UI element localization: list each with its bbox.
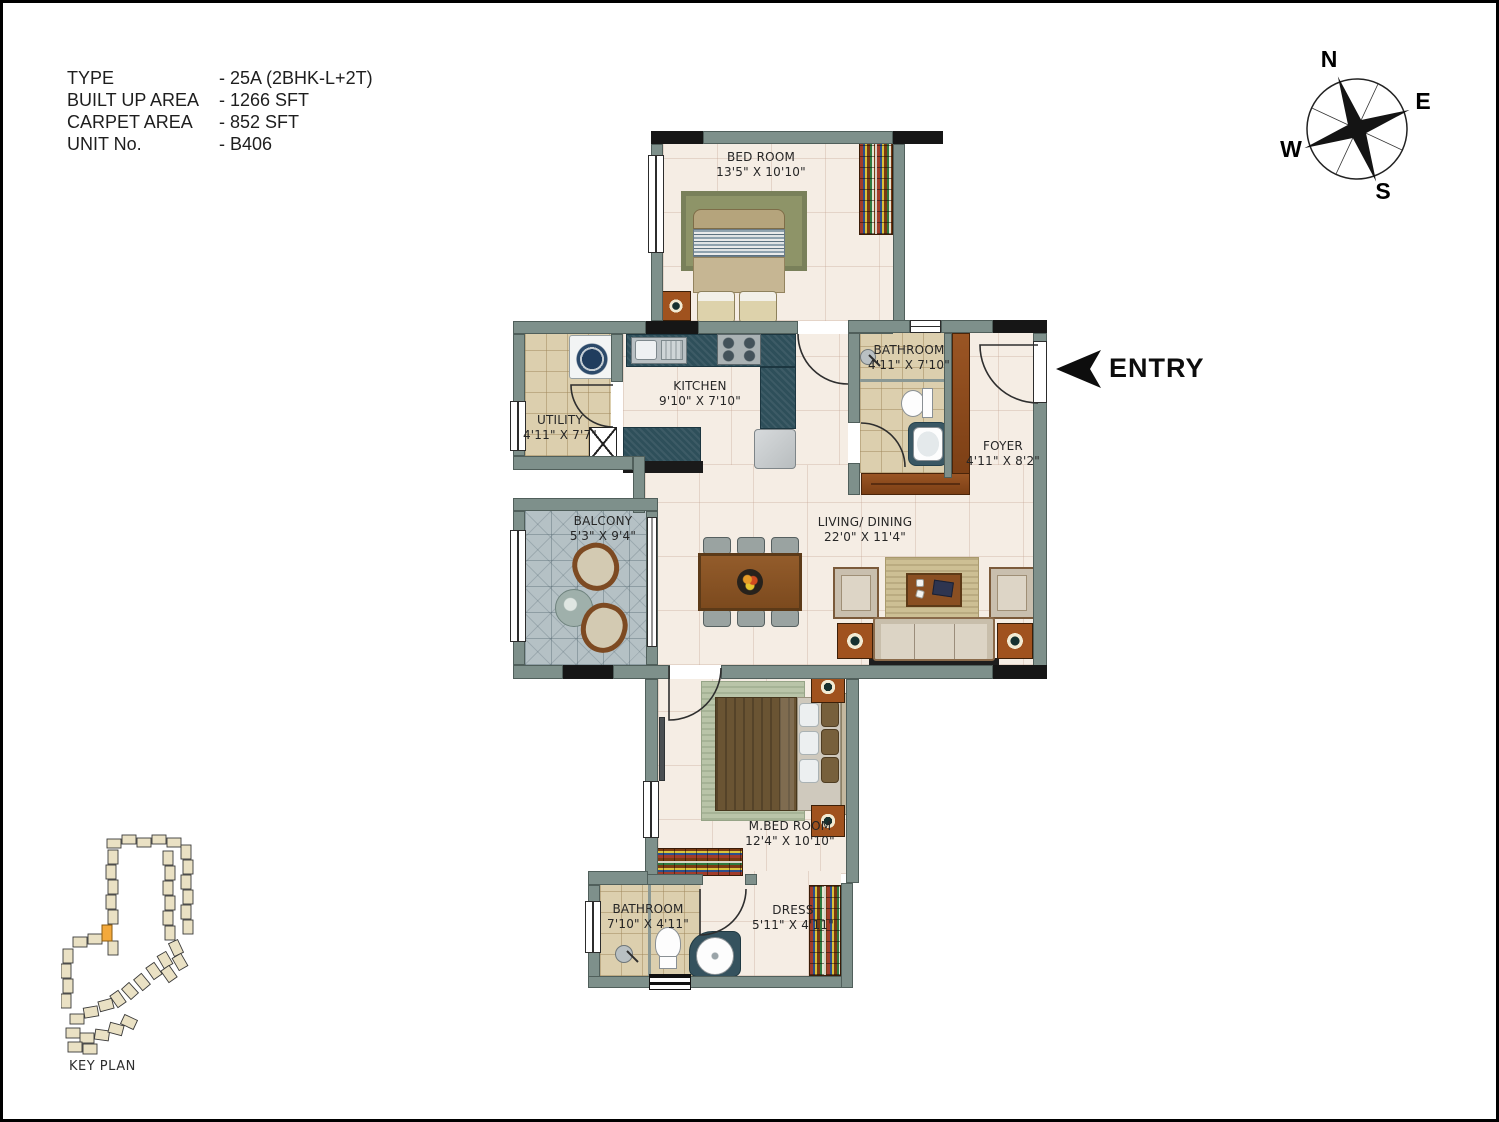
room-label-balcony: BALCONY5'3" X 9'4" xyxy=(570,514,636,544)
armchair-cushion xyxy=(841,575,871,611)
refrigerator xyxy=(754,429,796,469)
wall xyxy=(513,665,563,679)
side-lamp-table xyxy=(997,623,1033,659)
master-bed-duvet xyxy=(715,697,797,811)
bed-body xyxy=(693,257,785,293)
wall xyxy=(703,131,893,144)
toilet-base xyxy=(659,956,677,969)
room-label-kitchen: KITCHEN9'10" X 7'10" xyxy=(659,379,741,409)
shower-icon xyxy=(615,945,633,963)
room-label-bathroom-top: BATHROOM4'11" X 7'10" xyxy=(868,343,950,373)
wall xyxy=(993,665,1047,679)
key-plan-map xyxy=(61,833,216,1058)
bed-pillow xyxy=(739,291,777,323)
wall xyxy=(513,498,658,511)
unit-info-row: BUILT UP AREA- 1266 SFT xyxy=(67,89,373,111)
unit-info: TYPE- 25A (2BHK-L+2T) BUILT UP AREA- 126… xyxy=(67,67,373,155)
master-pillow-brown xyxy=(821,757,839,783)
compass-w: W xyxy=(1280,136,1302,162)
wall xyxy=(651,131,703,144)
wall xyxy=(513,456,633,470)
wall xyxy=(513,321,646,334)
wall xyxy=(893,144,905,321)
washing-machine xyxy=(569,335,615,379)
wall xyxy=(646,321,698,334)
wall xyxy=(721,665,993,679)
window xyxy=(649,974,691,990)
master-pillow-white xyxy=(799,731,819,755)
window xyxy=(648,155,664,253)
room-label-bathroom-bottom: BATHROOM7'10" X 4'11" xyxy=(607,902,689,932)
key-plan-unit-highlight xyxy=(102,925,112,941)
kitchen-stove xyxy=(717,334,761,365)
coffee-table-tray xyxy=(932,580,954,598)
compass-e: E xyxy=(1415,88,1430,114)
room-label-living-dining: LIVING/ DINING22'0" X 11'4" xyxy=(818,515,912,545)
washbasin-round xyxy=(696,937,734,975)
wall xyxy=(588,871,648,885)
side-lamp-table xyxy=(837,623,873,659)
master-pillow-white xyxy=(799,703,819,727)
wall xyxy=(941,320,993,333)
master-pillow-brown xyxy=(821,701,839,727)
entry-label: ENTRY xyxy=(1109,353,1205,384)
wall xyxy=(993,320,1047,333)
wall xyxy=(613,665,670,679)
washbasin xyxy=(913,427,943,461)
compass-icon: N E W S xyxy=(1265,41,1449,211)
dining-chair xyxy=(771,609,799,627)
window xyxy=(910,320,941,333)
dining-chair xyxy=(703,609,731,627)
sliding-door xyxy=(647,517,657,647)
wall xyxy=(646,874,703,885)
bedside-lamp-table xyxy=(661,291,691,321)
master-wardrobe xyxy=(651,848,743,876)
wall xyxy=(848,333,860,423)
bathroom-partition xyxy=(860,379,944,382)
armchair-cushion xyxy=(997,575,1027,611)
tv-panel xyxy=(659,717,665,781)
bedroom-wardrobe xyxy=(859,143,893,235)
room-label-bedroom: BED ROOM13'5" X 10'10" xyxy=(716,150,806,180)
sofa xyxy=(873,617,995,661)
toilet-tank xyxy=(922,388,933,418)
key-plan-label: KEY PLAN xyxy=(69,1059,136,1074)
wall xyxy=(588,976,853,988)
entry-door-opening xyxy=(1033,341,1047,403)
room-label-utility: UTILITY4'11" X 7'7" xyxy=(523,413,597,443)
kitchen-sink-bowl xyxy=(635,340,657,360)
wall xyxy=(745,874,757,885)
compass-n: N xyxy=(1321,46,1338,72)
master-pillow-white xyxy=(799,759,819,783)
wall xyxy=(848,463,860,495)
unit-info-row: CARPET AREA- 852 SFT xyxy=(67,111,373,133)
window xyxy=(510,530,526,642)
fruit-bowl xyxy=(737,569,763,595)
dining-chair xyxy=(737,609,765,627)
bed-headboard xyxy=(693,209,785,229)
coffee-cup xyxy=(916,579,924,587)
window xyxy=(643,781,659,838)
kitchen-drainboard xyxy=(661,340,683,360)
compass-s: S xyxy=(1375,178,1390,204)
room-label-dress: DRESS5'11" X 4'11" xyxy=(752,903,834,933)
room-label-master-bedroom: M.BED ROOM12'4" X 10'10" xyxy=(745,819,835,849)
wall xyxy=(841,883,853,988)
bed-duvet-striped xyxy=(693,229,785,257)
floor-plan-sheet: TYPE- 25A (2BHK-L+2T) BUILT UP AREA- 126… xyxy=(0,0,1499,1122)
kitchen-counter-right xyxy=(760,367,796,429)
window xyxy=(585,901,601,953)
bed-pillow xyxy=(697,291,735,323)
wall xyxy=(611,334,623,382)
unit-info-row: TYPE- 25A (2BHK-L+2T) xyxy=(67,67,373,89)
wall xyxy=(893,131,943,144)
wall xyxy=(846,679,859,883)
entry-arrow-icon xyxy=(1056,350,1101,388)
wall xyxy=(848,320,910,333)
key-plan-buildings xyxy=(61,835,193,1054)
room-label-foyer: FOYER4'11" X 8'2" xyxy=(966,439,1040,469)
wall xyxy=(563,665,613,679)
unit-info-row: UNIT No.- B406 xyxy=(67,133,373,155)
master-pillow-brown xyxy=(821,729,839,755)
cabinet-handle xyxy=(871,483,960,485)
wall xyxy=(698,321,798,334)
